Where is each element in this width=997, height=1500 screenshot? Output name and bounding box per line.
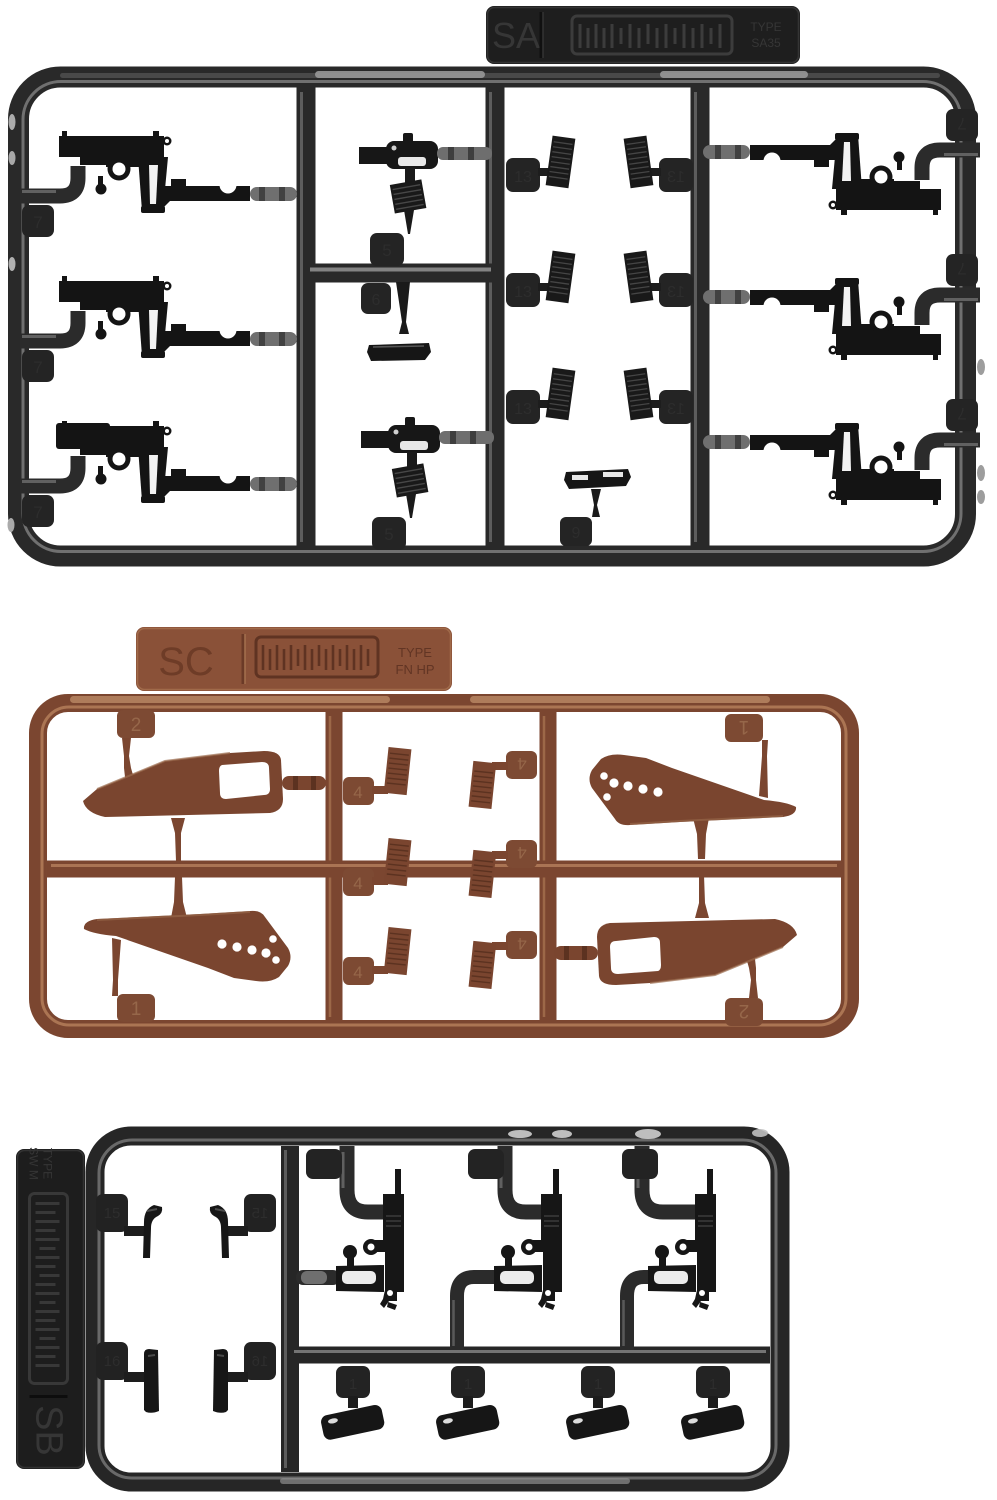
svg-text:9: 9 bbox=[572, 525, 581, 542]
svg-text:SA: SA bbox=[492, 15, 540, 56]
svg-text:SW M: SW M bbox=[27, 1147, 41, 1180]
svg-text:TYPE: TYPE bbox=[398, 645, 432, 660]
svg-text:SB: SB bbox=[28, 1405, 70, 1456]
svg-text:FN HP: FN HP bbox=[396, 662, 435, 677]
svg-text:SA35: SA35 bbox=[751, 36, 781, 50]
svg-text:TYPE: TYPE bbox=[750, 20, 781, 34]
svg-text:SC: SC bbox=[158, 640, 214, 684]
svg-text:6: 6 bbox=[372, 292, 381, 309]
svg-text:TYPE: TYPE bbox=[41, 1148, 55, 1179]
